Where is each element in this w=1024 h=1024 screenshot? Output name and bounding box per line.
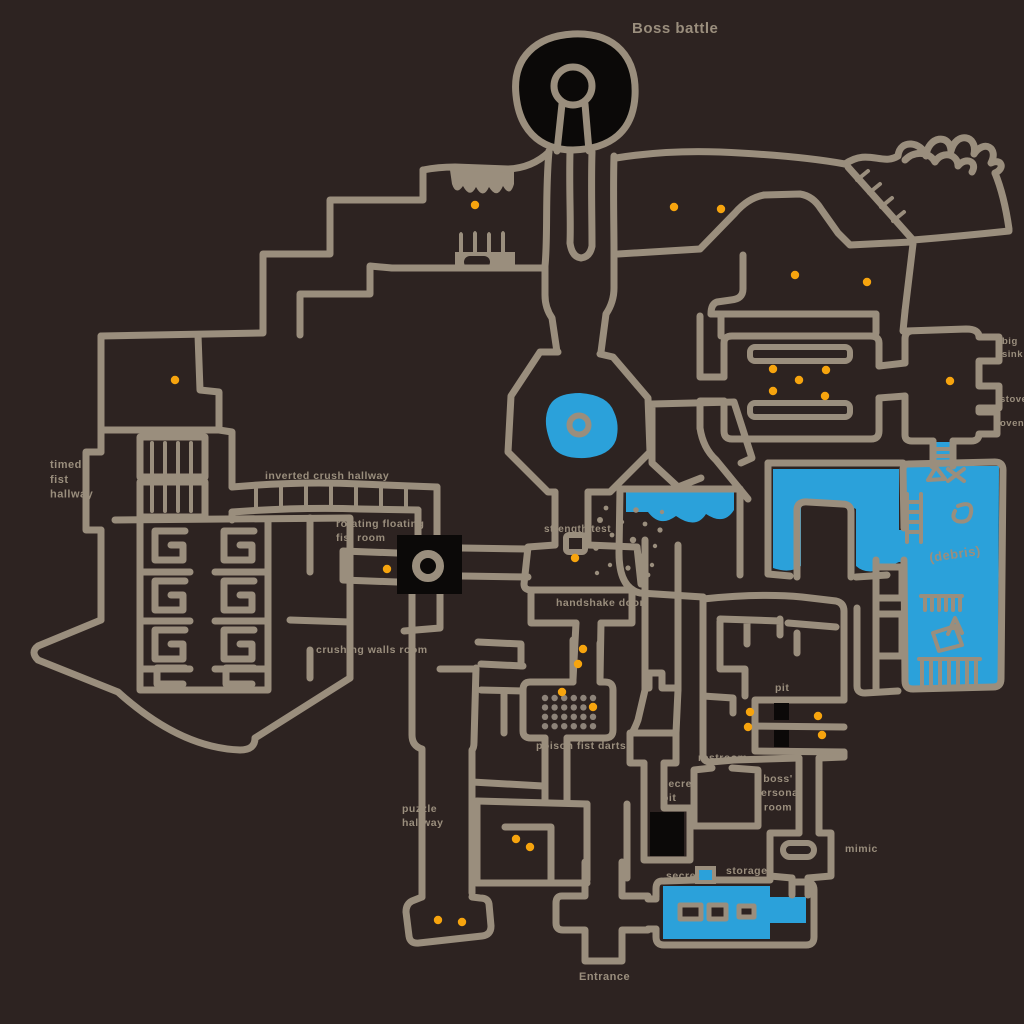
pit-slot-1 <box>774 703 789 720</box>
label-stove: stove <box>1000 394 1024 405</box>
dart-dot <box>561 723 567 729</box>
stair-steps <box>857 171 904 221</box>
item-dot <box>670 203 678 211</box>
mimic-chest <box>783 843 814 857</box>
dart-dot <box>542 714 548 720</box>
puzzle-room-wall <box>406 897 491 943</box>
poison-room-wall <box>523 682 613 738</box>
item-dot <box>558 688 566 696</box>
item-dot <box>717 205 725 213</box>
label-secret-storage: secret <box>666 870 700 882</box>
label-handshake-door: handshake door <box>556 597 644 609</box>
dart-dot <box>551 723 557 729</box>
item-dot <box>746 708 754 716</box>
dart-dot <box>590 723 596 729</box>
pit-slot-2 <box>774 730 789 747</box>
dart-dots <box>542 695 596 730</box>
item-dot <box>814 712 822 720</box>
crusher-teeth <box>450 170 515 268</box>
item-dot <box>589 703 597 711</box>
dart-dot <box>580 723 586 729</box>
dungeon-map-canvas: Boss battletimedfisthallwayinverted crus… <box>0 0 1024 1024</box>
dart-dot <box>580 714 586 720</box>
dart-dot <box>590 695 596 701</box>
item-dot <box>821 392 829 400</box>
dart-dot <box>580 695 586 701</box>
label-big-sink: bigsink <box>1002 336 1023 360</box>
upper-teeth <box>450 170 514 194</box>
label-restroom: restroom <box>698 752 748 764</box>
secret-pit-hole <box>650 812 684 856</box>
dart-dot <box>580 704 586 710</box>
item-dot <box>171 376 179 384</box>
item-dot <box>946 377 954 385</box>
label-crushing-walls-room: crushing walls room <box>316 644 428 656</box>
pond-water <box>546 393 618 458</box>
dining-table-1 <box>750 347 850 361</box>
label-storage: storage <box>726 865 767 877</box>
restroom-wall <box>694 768 758 826</box>
dart-dot <box>551 714 557 720</box>
dart-dot <box>561 714 567 720</box>
dart-dot <box>542 704 548 710</box>
dart-dot <box>551 695 557 701</box>
dining-table-2 <box>750 403 850 417</box>
dart-dot <box>590 714 596 720</box>
storage-slab-2 <box>709 905 726 919</box>
stream-water <box>626 492 734 523</box>
item-dot <box>822 366 830 374</box>
item-dot <box>471 201 479 209</box>
pit-cells <box>755 700 844 752</box>
storage-slab-1 <box>680 905 701 919</box>
kitchen-wall <box>905 329 999 441</box>
dart-dot <box>561 704 567 710</box>
maze-spirals <box>155 531 254 684</box>
label-entrance: Entrance <box>579 971 630 983</box>
item-dot <box>818 731 826 739</box>
strength-test-button <box>566 535 585 552</box>
dart-dot <box>542 723 548 729</box>
item-dot <box>526 843 534 851</box>
entrance-wall <box>556 862 648 961</box>
label-oven: oven <box>1000 418 1024 429</box>
item-dot <box>791 271 799 279</box>
item-dot <box>579 645 587 653</box>
label-poison-fist-darts: poison fist darts <box>536 740 626 752</box>
label-boss-battle: Boss battle <box>632 20 718 37</box>
dart-dot <box>542 695 548 701</box>
storage-slab-3 <box>739 906 754 917</box>
label-inverted-crush-hallway: inverted crush hallway <box>265 470 389 482</box>
item-dot <box>458 918 466 926</box>
dart-dot <box>571 695 577 701</box>
dungeon-map: Boss battletimedfisthallwayinverted crus… <box>0 0 1024 1024</box>
item-dot <box>571 554 579 562</box>
item-dot <box>512 835 520 843</box>
item-dot <box>383 565 391 573</box>
label-strength-test: strength test <box>544 524 611 535</box>
dart-dot <box>571 714 577 720</box>
item-dot <box>574 660 582 668</box>
item-dot <box>769 365 777 373</box>
label-mimic: mimic <box>845 843 878 855</box>
item-dot <box>795 376 803 384</box>
rotating-fist-room-floor <box>397 535 462 594</box>
item-dot <box>769 387 777 395</box>
dart-dot <box>571 704 577 710</box>
item-dot <box>863 278 871 286</box>
item-dot <box>744 723 752 731</box>
label-pit: pit <box>775 682 789 694</box>
pool-peninsula <box>797 502 851 577</box>
item-dots <box>171 201 954 926</box>
dart-dot <box>551 704 557 710</box>
left-pool-water <box>773 469 899 572</box>
item-dot <box>434 916 442 924</box>
dart-dot <box>571 723 577 729</box>
